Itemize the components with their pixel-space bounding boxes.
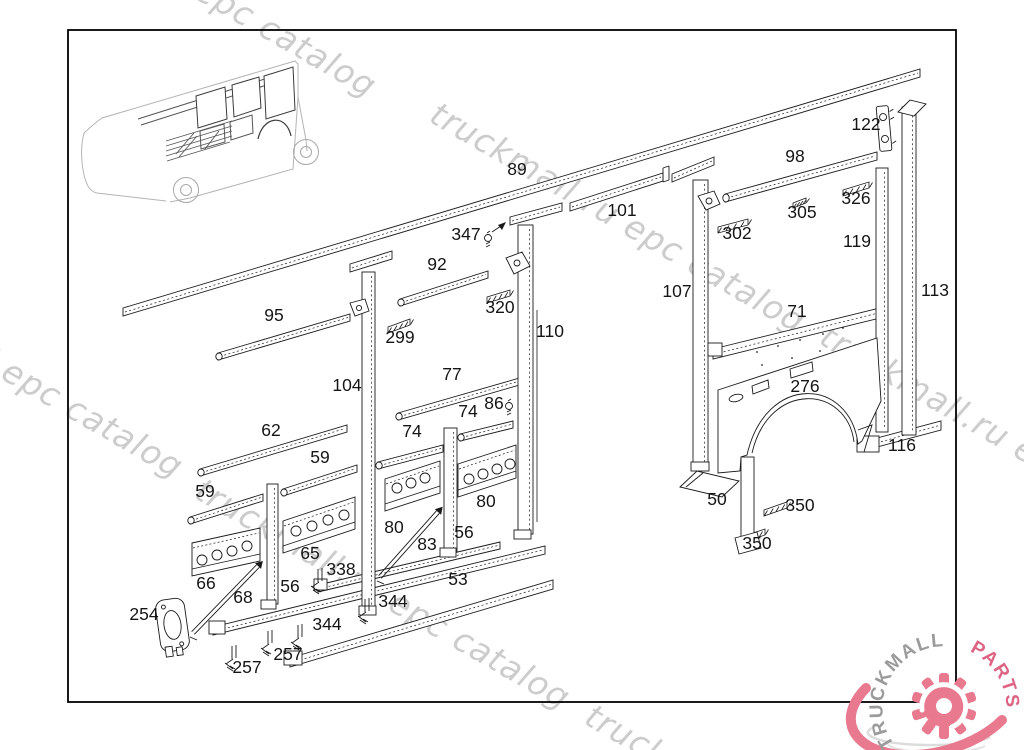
part-label-68: 68: [233, 587, 252, 607]
part-label-66: 66: [196, 573, 215, 593]
part-label-62: 62: [261, 420, 280, 440]
part-label-350: 350: [742, 533, 771, 553]
part-label-74: 74: [458, 401, 478, 421]
part-label-50: 50: [707, 489, 727, 509]
part-label-71: 71: [787, 301, 806, 321]
part-254: [155, 597, 192, 657]
part-label-305: 305: [787, 202, 816, 222]
part-label-254: 254: [129, 604, 158, 624]
part-label-257: 257: [232, 657, 261, 677]
part-label-59: 59: [195, 481, 214, 501]
wheel-arch-panel: [718, 338, 881, 473]
part-label-80: 80: [384, 517, 404, 537]
part-label-113: 113: [921, 280, 949, 300]
part-label-326: 326: [841, 188, 870, 208]
part-label-122: 122: [851, 114, 880, 134]
part-label-107: 107: [662, 281, 691, 301]
part-label-83: 83: [417, 534, 436, 554]
part-label-53: 53: [448, 569, 467, 589]
part-label-86: 86: [484, 393, 503, 413]
part-label-110: 110: [536, 321, 564, 341]
part-label-116: 116: [888, 435, 916, 455]
parts-diagram: 8912298101326305302347119921071133209571…: [0, 0, 1024, 750]
part-label-350: 350: [785, 495, 814, 515]
part-label-344: 344: [378, 591, 407, 611]
part-label-276: 276: [790, 376, 819, 396]
part-label-338: 338: [326, 559, 355, 579]
part-label-65: 65: [300, 543, 319, 563]
part-label-347: 347: [451, 224, 480, 244]
part-label-59: 59: [310, 447, 329, 467]
part-label-257: 257: [273, 644, 302, 664]
part-label-56: 56: [454, 522, 473, 542]
part-label-98: 98: [785, 146, 804, 166]
part-label-74: 74: [402, 421, 422, 441]
gear-icon: [911, 673, 977, 739]
part-label-344: 344: [312, 614, 341, 634]
part-label-299: 299: [385, 327, 414, 347]
part-label-302: 302: [722, 223, 751, 243]
part-label-77: 77: [442, 364, 461, 384]
part-label-101: 101: [607, 200, 636, 220]
part-label-80: 80: [476, 491, 496, 511]
part-label-119: 119: [843, 231, 871, 251]
part-label-92: 92: [427, 254, 446, 274]
part-label-95: 95: [264, 305, 283, 325]
part-label-56: 56: [280, 576, 299, 596]
part-label-320: 320: [485, 297, 514, 317]
truckmall-parts-logo: TRUCKMALL PARTS: [851, 630, 1023, 750]
part-label-104: 104: [332, 375, 361, 395]
catalog-page: epc catalogtruckmall.ru epc catalogl epc…: [0, 0, 1024, 750]
bus-sketch: [82, 61, 319, 203]
part-label-89: 89: [507, 159, 526, 179]
